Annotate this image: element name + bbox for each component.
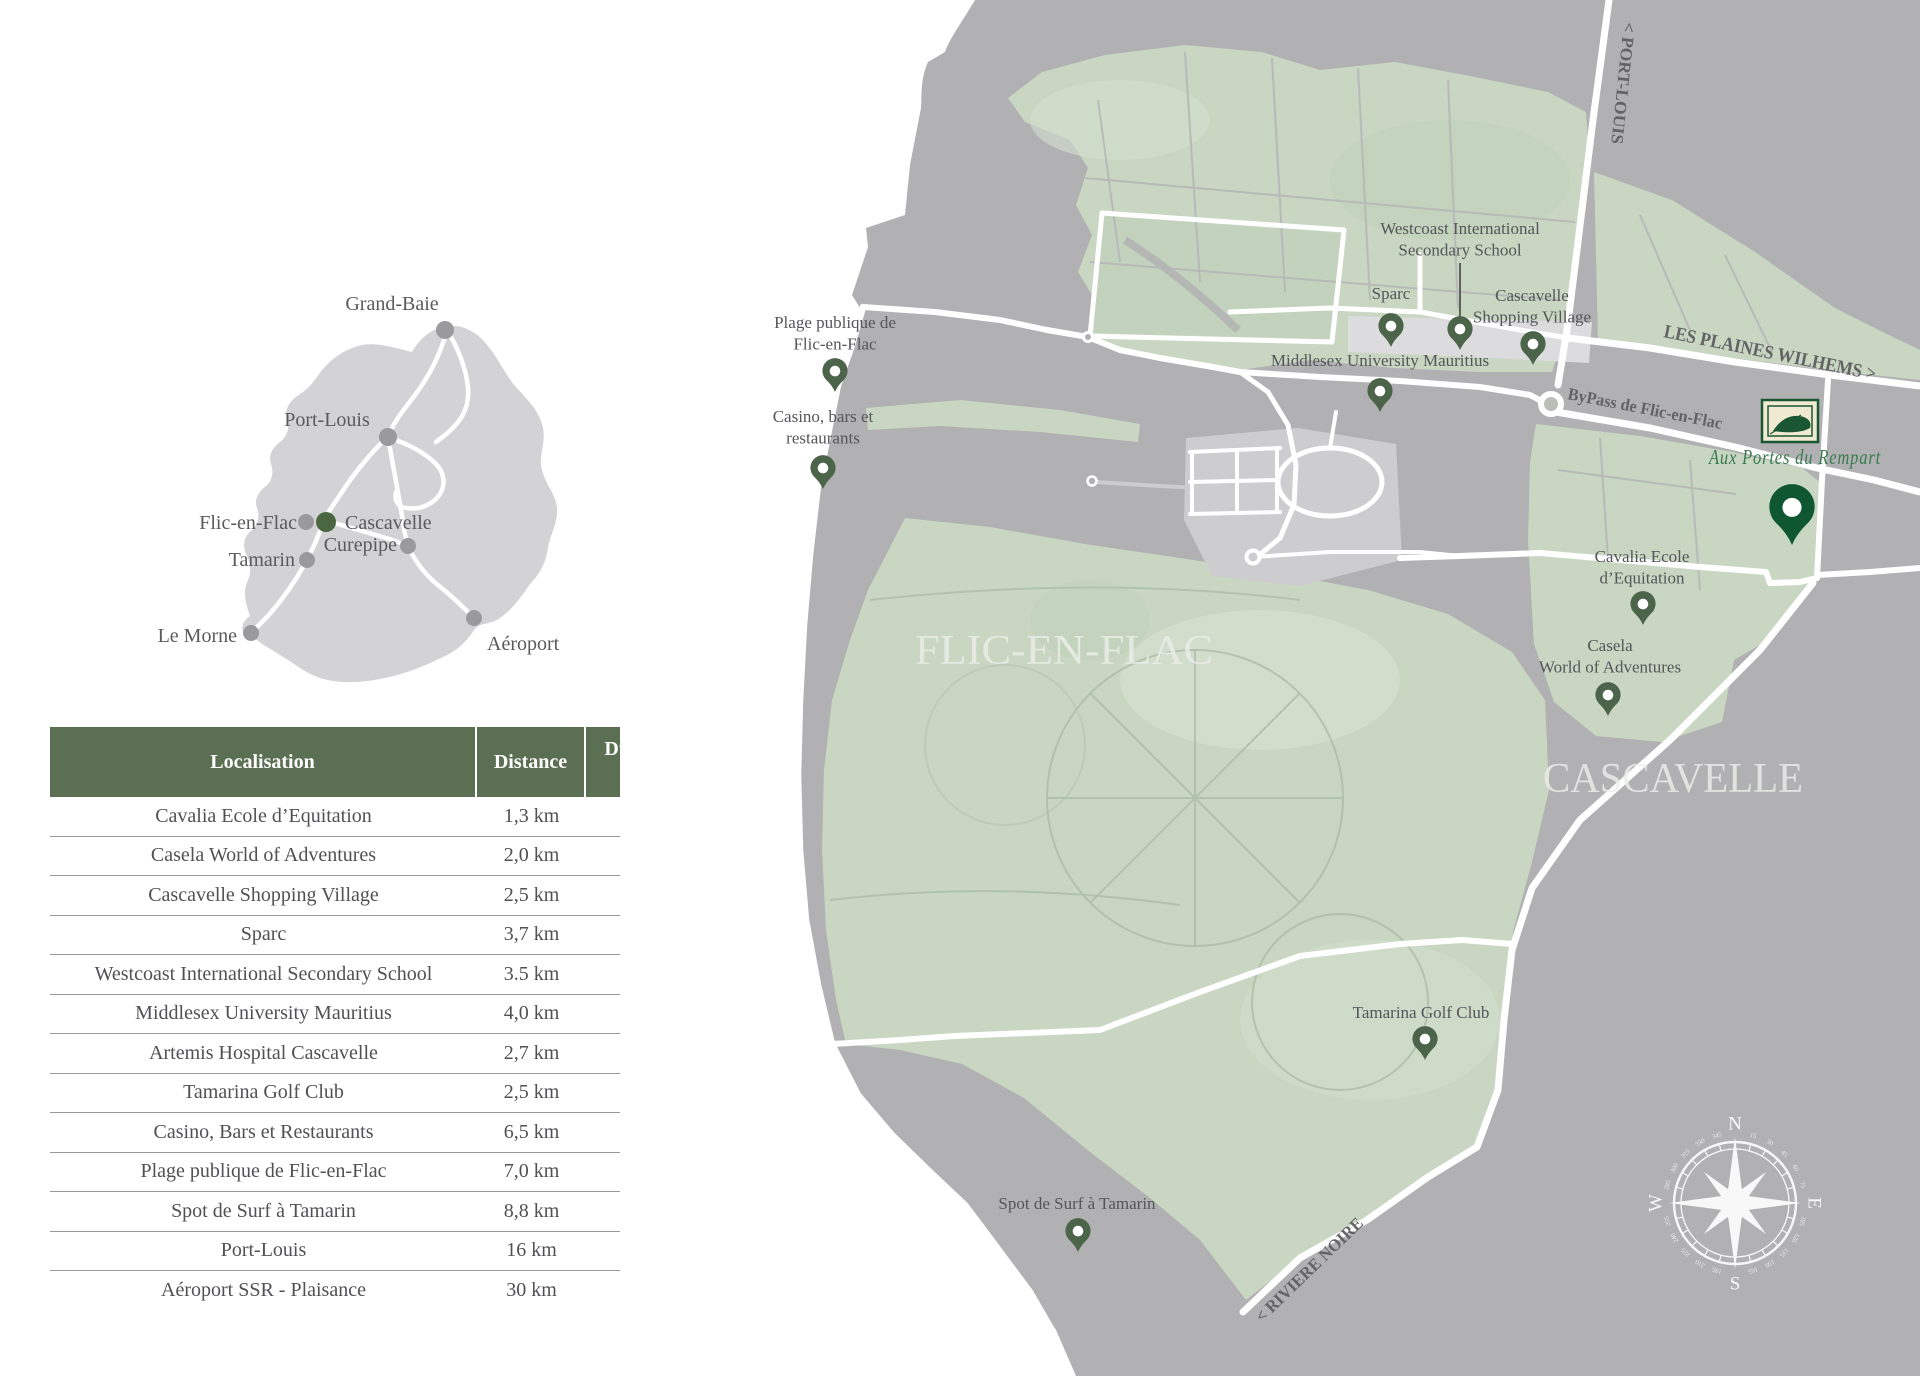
distance-cell: 2,5 km xyxy=(477,1074,586,1113)
island-place-aeroport: Aéroport xyxy=(466,610,560,655)
port-louis-dot xyxy=(379,428,397,446)
compass-letter-E: E xyxy=(1803,1197,1824,1209)
distance-cell: 2,7 km xyxy=(477,1034,586,1073)
flic-en-flac-label: Flic-en-Flac xyxy=(199,512,297,534)
plage-publique-label: Flic-en-Flac xyxy=(793,335,877,354)
localisation-cell: Casino, Bars et Restaurants xyxy=(50,1113,477,1152)
compass-letter-N: N xyxy=(1728,1114,1742,1135)
distance-cell: 7,0 km xyxy=(477,1153,586,1192)
plage-publique-label: Plage publique de xyxy=(774,313,896,332)
distance-cell: 8,8 km xyxy=(477,1192,586,1231)
localisation-cell: Sparc xyxy=(50,916,477,955)
localisation-cell: Westcoast International Secondary School xyxy=(50,955,477,994)
localisation-cell: Casela World of Adventures xyxy=(50,837,477,876)
localisation-cell: Middlesex University Mauritius xyxy=(50,995,477,1034)
cascavelle-dot xyxy=(316,512,336,532)
aeroport-dot xyxy=(466,610,482,626)
localisation-cell: Aéroport SSR - Plaisance xyxy=(50,1271,477,1311)
curepipe-dot xyxy=(400,538,416,554)
cavalia-label: Cavalia Ecole xyxy=(1595,547,1690,566)
tamarin-dot xyxy=(299,552,315,568)
island-place-flic-en-flac: Flic-en-Flac xyxy=(199,512,314,534)
localisation-cell: Cavalia Ecole d’Equitation xyxy=(50,797,477,836)
paddock-green xyxy=(1093,216,1341,339)
distance-cell: 2,5 km xyxy=(477,876,586,915)
aeroport-label: Aéroport xyxy=(487,633,560,655)
detail-map-svg: FLIC-EN-FLACCASCAVELLE Plage publique de… xyxy=(620,0,1920,1376)
bypass-roundabout xyxy=(1541,394,1561,414)
westcoast-school-label: Secondary School xyxy=(1398,241,1522,260)
casino-bars-label: restaurants xyxy=(786,429,860,448)
distance-cell: 6,5 km xyxy=(477,1113,586,1152)
distance-cell: 3,7 km xyxy=(477,916,586,955)
distance-cell: 4,0 km xyxy=(477,995,586,1034)
flic-en-flac-area-label: FLIC-EN-FLAC xyxy=(915,628,1213,674)
localisation-cell: Tamarina Golf Club xyxy=(50,1074,477,1113)
location-flyer: Grand-BaiePort-LouisFlic-en-FlacCascavel… xyxy=(0,0,1920,1376)
compass-hub xyxy=(1722,1190,1748,1216)
localisation-cell: Port-Louis xyxy=(50,1232,477,1271)
distance-cell: 1,3 km xyxy=(477,797,586,836)
grand-baie-dot xyxy=(436,321,454,339)
casino-bars-label: Casino, bars et xyxy=(773,407,874,426)
island-place-grand-baie: Grand-Baie xyxy=(345,293,454,339)
casela-label: Casela xyxy=(1587,636,1633,655)
cascavelle-shopping-label: Cascavelle xyxy=(1495,286,1569,305)
localisation-cell: Spot de Surf à Tamarin xyxy=(50,1192,477,1231)
spot-surf-label: Spot de Surf à Tamarin xyxy=(998,1194,1156,1213)
le-morne-dot xyxy=(243,625,259,641)
port-louis-label: Port-Louis xyxy=(284,409,370,431)
junction-circle xyxy=(1084,333,1093,342)
mini-roundabout xyxy=(1247,551,1260,564)
compass-letter-S: S xyxy=(1730,1274,1741,1295)
distance-cell: 3.5 km xyxy=(477,955,586,994)
curepipe-label: Curepipe xyxy=(324,534,397,556)
cascavelle-label: Cascavelle xyxy=(345,512,432,534)
tamarin-label: Tamarin xyxy=(229,549,295,571)
flic-en-flac-dot xyxy=(298,514,314,530)
cavalia-label: d’Equitation xyxy=(1600,569,1685,588)
grand-baie-label: Grand-Baie xyxy=(345,293,438,315)
cascavelle-area-label: CASCAVELLE xyxy=(1543,756,1803,802)
tamarina-golf-label: Tamarina Golf Club xyxy=(1353,1003,1490,1022)
sparc-label: Sparc xyxy=(1372,284,1411,303)
localisation-cell: Cascavelle Shopping Village xyxy=(50,876,477,915)
le-morne-label: Le Morne xyxy=(158,625,238,647)
island-map-svg: Grand-BaiePort-LouisFlic-en-FlacCascavel… xyxy=(0,0,620,760)
cascavelle-shopping-label: Shopping Village xyxy=(1473,308,1591,327)
header-localisation: Localisation xyxy=(50,727,477,797)
localisation-cell: Plage publique de Flic-en-Flac xyxy=(50,1153,477,1192)
casela-label: World of Adventures xyxy=(1539,658,1681,677)
distance-cell: 16 km xyxy=(477,1232,586,1271)
localisation-cell: Artemis Hospital Cascavelle xyxy=(50,1034,477,1073)
header-distance: Distance xyxy=(477,727,586,797)
distance-cell: 2,0 km xyxy=(477,837,586,876)
middlesex-university-label: Middlesex University Mauritius xyxy=(1271,351,1489,370)
distance-cell: 30 km xyxy=(477,1271,586,1311)
westcoast-school-label: Westcoast International xyxy=(1380,219,1540,238)
project-name-script: Aux Portes du Rempart xyxy=(1707,445,1881,469)
compass-letter-W: W xyxy=(1646,1194,1667,1212)
